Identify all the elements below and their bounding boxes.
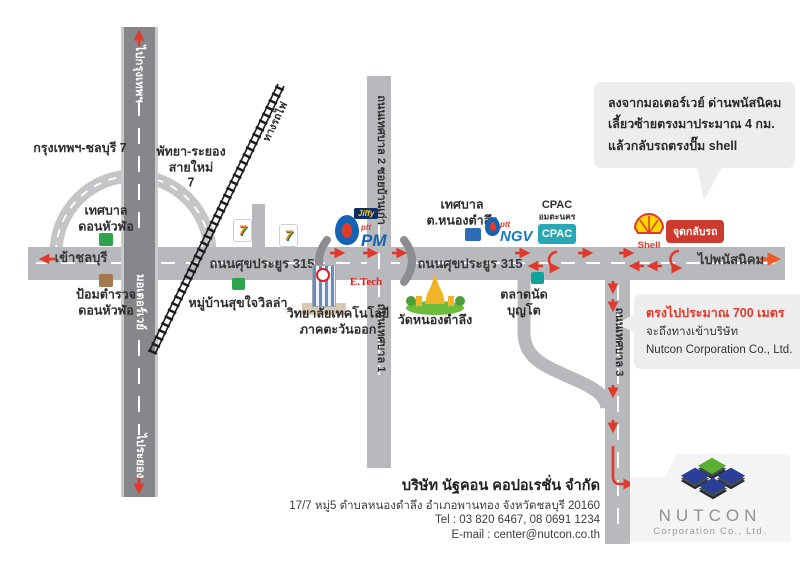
railway-track: [149, 84, 284, 354]
label-to-rayong: ไประยอง: [133, 434, 147, 479]
label-don-hua-lo-police: ป้อมตำรวจ ดอนหัวฬ่อ: [76, 287, 136, 318]
shell-icon: [633, 212, 665, 239]
logo-subtitle: Corporation Co., Ltd.: [630, 526, 790, 537]
ngv-text: NGV: [500, 229, 533, 244]
ptt-flame-icon: [485, 217, 500, 236]
arrow-turn-into-company: [613, 446, 631, 484]
seven-eleven-icon: 7: [279, 224, 298, 247]
label-thetsaban-2: ถนนเทศบาล 2 ซอยบ้านเก่า: [373, 95, 387, 225]
label-shell: Shell: [638, 240, 661, 252]
label-bunto-market: ตลาดนัด บุญโต: [500, 287, 548, 318]
company-email: E-mail : center@nutcon.co.th: [240, 528, 600, 543]
arrival-bubble: ตรงไปประมาณ 700 เมตร จะถึงทางเข้าบริษัท …: [634, 294, 800, 369]
company-tel: Tel : 03 820 6467, 08 0691 1234: [240, 513, 600, 528]
logo-name: NUTCON: [630, 506, 790, 526]
label-etech-college: วิทยาลัยเทคโนโลยี ภาคตะวันออก: [287, 306, 389, 337]
seven-eleven-icon: 7: [233, 219, 252, 242]
company-address: 17/7 หมู่5 ตำบลหนองตำลึง อำเภอพานทอง จัง…: [240, 499, 600, 514]
label-cpac-amata: อมตะนคร: [539, 212, 576, 223]
uturn-arrow-shell: [671, 251, 680, 268]
label-ramp-pattaya-rayong: พัทยา-ระยอง สายใหม่ 7: [156, 145, 225, 192]
label-to-chonburi: เข้าชลบุรี: [55, 250, 108, 266]
temple-icon: [404, 272, 466, 316]
label-sukprayoon-left: ถนนศุขประยูร 315: [210, 256, 315, 272]
label-to-phanat-nikhom: ไปพนัสนิคม: [698, 252, 764, 268]
ptt-ngv-logo: ptt NGV: [500, 221, 533, 244]
logo-tile-blue: [699, 480, 727, 500]
sukjai-villa-marker: [232, 278, 245, 290]
uturn-point-badge: จุดกลับรถ: [666, 220, 724, 243]
arrival-line: Nutcon Corporation Co., Ltd.: [646, 342, 792, 360]
ptt-flame-icon: [335, 215, 359, 245]
don-hua-lo-municipality-marker: [99, 233, 113, 246]
directions-line: ลงจากมอเตอร์เวย์ ด่านพนัสนิคม: [608, 93, 781, 114]
company-name: บริษัท นัฐคอน คอปอเรชั่น จำกัด: [240, 477, 600, 496]
arrival-distance: ตรงไปประมาณ 700 เมตร: [646, 303, 792, 324]
directions-line: แล้วกลับรถตรงปั๊ม shell: [608, 136, 781, 157]
label-wat-nong-tamlueng: วัดหนองตำลึง: [398, 313, 472, 329]
label-etech: E.Tech: [350, 276, 382, 288]
company-info: บริษัท นัฐคอน คอปอเรชั่น จำกัด 17/7 หมู่…: [240, 477, 600, 543]
label-thetsaban-3: ถนนเทศบาล 3: [611, 308, 625, 377]
nong-tamlueng-municipality-marker: [465, 228, 481, 241]
ptt-pm-logo: ptt PM: [361, 224, 387, 249]
seven-eleven-glyph: 7: [239, 222, 247, 238]
label-sukjai-villa: หมู่บ้านสุขใจวิลล่า: [189, 296, 288, 312]
label-ramp-bangkok-chonburi: กรุงเทพฯ-ชลบุรี 7: [33, 141, 127, 157]
map-canvas: ไปกรุงเทพฯ มอเตอร์เวย์ ไประยอง ถนนเทศบาล…: [0, 0, 800, 566]
uturn-arrow-west: [549, 252, 557, 268]
arrival-line: จะถึงทางเข้าบริษัท: [646, 324, 792, 342]
jiffy-logo: Jiffy: [354, 208, 378, 219]
bunto-market-marker: [531, 272, 544, 284]
directions-bubble: ลงจากมอเตอร์เวย์ ด่านพนัสนิคม เลี้ยวซ้าย…: [594, 82, 795, 168]
pm-text: PM: [361, 232, 387, 249]
label-don-hua-lo-municipality: เทศบาล ดอนหัวฬ่อ: [78, 203, 133, 234]
etech-emblem-icon: [316, 268, 330, 282]
police-box-marker: [99, 274, 113, 287]
label-sukprayoon-right: ถนนศุขประยูร 315: [418, 256, 523, 272]
directions-line: เลี้ยวซ้ายตรงมาประมาณ 4 กม.: [608, 114, 781, 135]
cpac-logo: CPAC: [538, 224, 576, 244]
label-to-bangkok: ไปกรุงเทพฯ: [132, 45, 146, 102]
seven-eleven-glyph: 7: [285, 227, 293, 243]
